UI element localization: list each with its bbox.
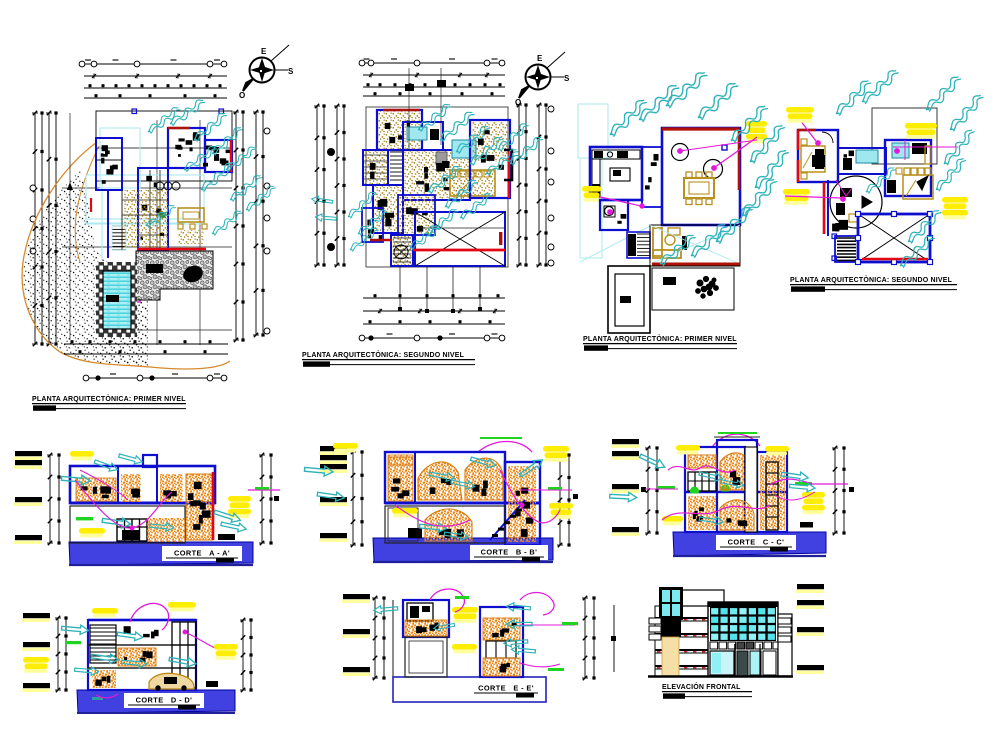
svg-text:E: E <box>537 54 543 63</box>
svg-text:CORTE B - B': CORTE B - B' <box>481 548 538 557</box>
svg-text:S: S <box>564 74 570 83</box>
svg-text:O: O <box>239 91 245 100</box>
svg-text:S: S <box>288 67 294 76</box>
svg-text:E: E <box>261 47 267 56</box>
svg-text:PLANTA ARQUITECTÒNICA: SEGUNDO: PLANTA ARQUITECTÒNICA: SEGUNDO NIVEL <box>302 350 465 359</box>
svg-text:PLANTA ARQUITECTÒNICA: PRIMER: PLANTA ARQUITECTÒNICA: PRIMER NIVEL <box>583 334 737 343</box>
svg-text:CORTE D - D': CORTE D - D' <box>136 696 193 705</box>
svg-text:CORTE E - E': CORTE E - E' <box>478 684 534 693</box>
svg-text:CORTE A - A': CORTE A - A' <box>174 549 230 558</box>
svg-text:PLANTA ARQUITECTÒNICA: SEGUNDO: PLANTA ARQUITECTÒNICA: SEGUNDO NIVEL <box>790 275 953 284</box>
svg-text:CORTE C - C': CORTE C - C' <box>728 538 785 547</box>
svg-text:ELEVACIÓN FRONTAL: ELEVACIÓN FRONTAL <box>662 682 741 691</box>
svg-text:PLANTA ARQUITECTÒNICA: PRIMER: PLANTA ARQUITECTÒNICA: PRIMER NIVEL <box>32 394 186 403</box>
